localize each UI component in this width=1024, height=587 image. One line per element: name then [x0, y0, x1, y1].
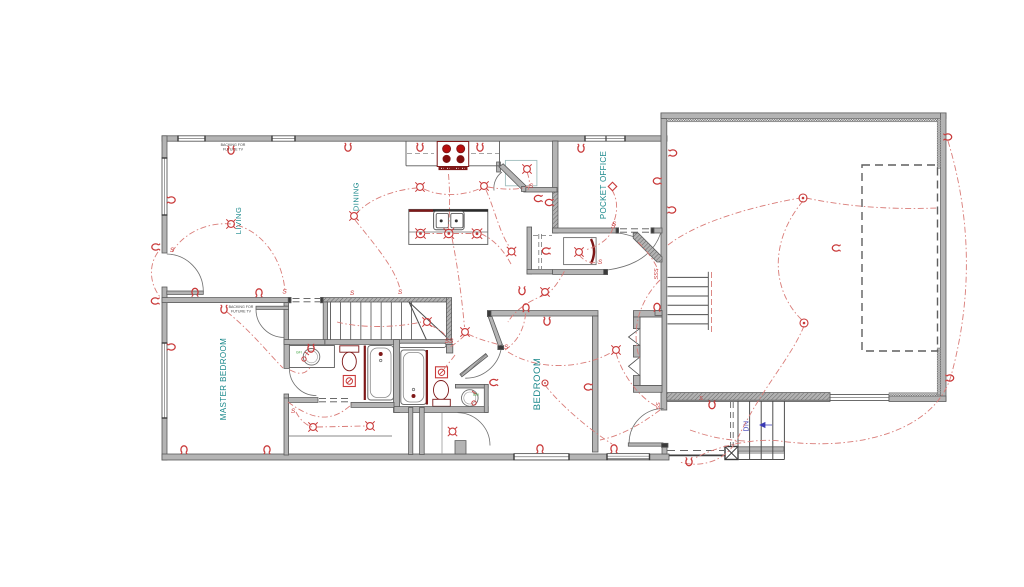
svg-text:S: S: [529, 183, 534, 190]
svg-text:LIVING: LIVING: [234, 207, 243, 235]
svg-text:S: S: [170, 247, 175, 254]
svg-text:SS: SS: [656, 402, 662, 410]
svg-text:S: S: [612, 221, 617, 228]
svg-text:GFI: GFI: [473, 393, 479, 397]
svg-text:MASTER BEDROOM: MASTER BEDROOM: [219, 338, 228, 421]
svg-text:S: S: [598, 259, 603, 266]
svg-text:BEDROOM: BEDROOM: [532, 358, 543, 411]
svg-text:POCKET OFFICE: POCKET OFFICE: [599, 151, 608, 219]
svg-text:BACKING FOR: BACKING FOR: [229, 305, 254, 309]
svg-text:DN: DN: [744, 420, 751, 431]
svg-text:FUTURE TV: FUTURE TV: [231, 310, 252, 314]
svg-text:SS: SS: [445, 338, 454, 345]
svg-text:S: S: [291, 408, 296, 415]
svg-text:SSS: SSS: [654, 268, 660, 279]
svg-text:S: S: [282, 289, 287, 296]
svg-text:S: S: [699, 396, 703, 402]
svg-text:S: S: [398, 289, 403, 296]
svg-text:S: S: [504, 344, 509, 351]
svg-text:DINING: DINING: [352, 182, 361, 211]
svg-text:GFI: GFI: [296, 351, 302, 355]
svg-text:S: S: [350, 290, 355, 297]
